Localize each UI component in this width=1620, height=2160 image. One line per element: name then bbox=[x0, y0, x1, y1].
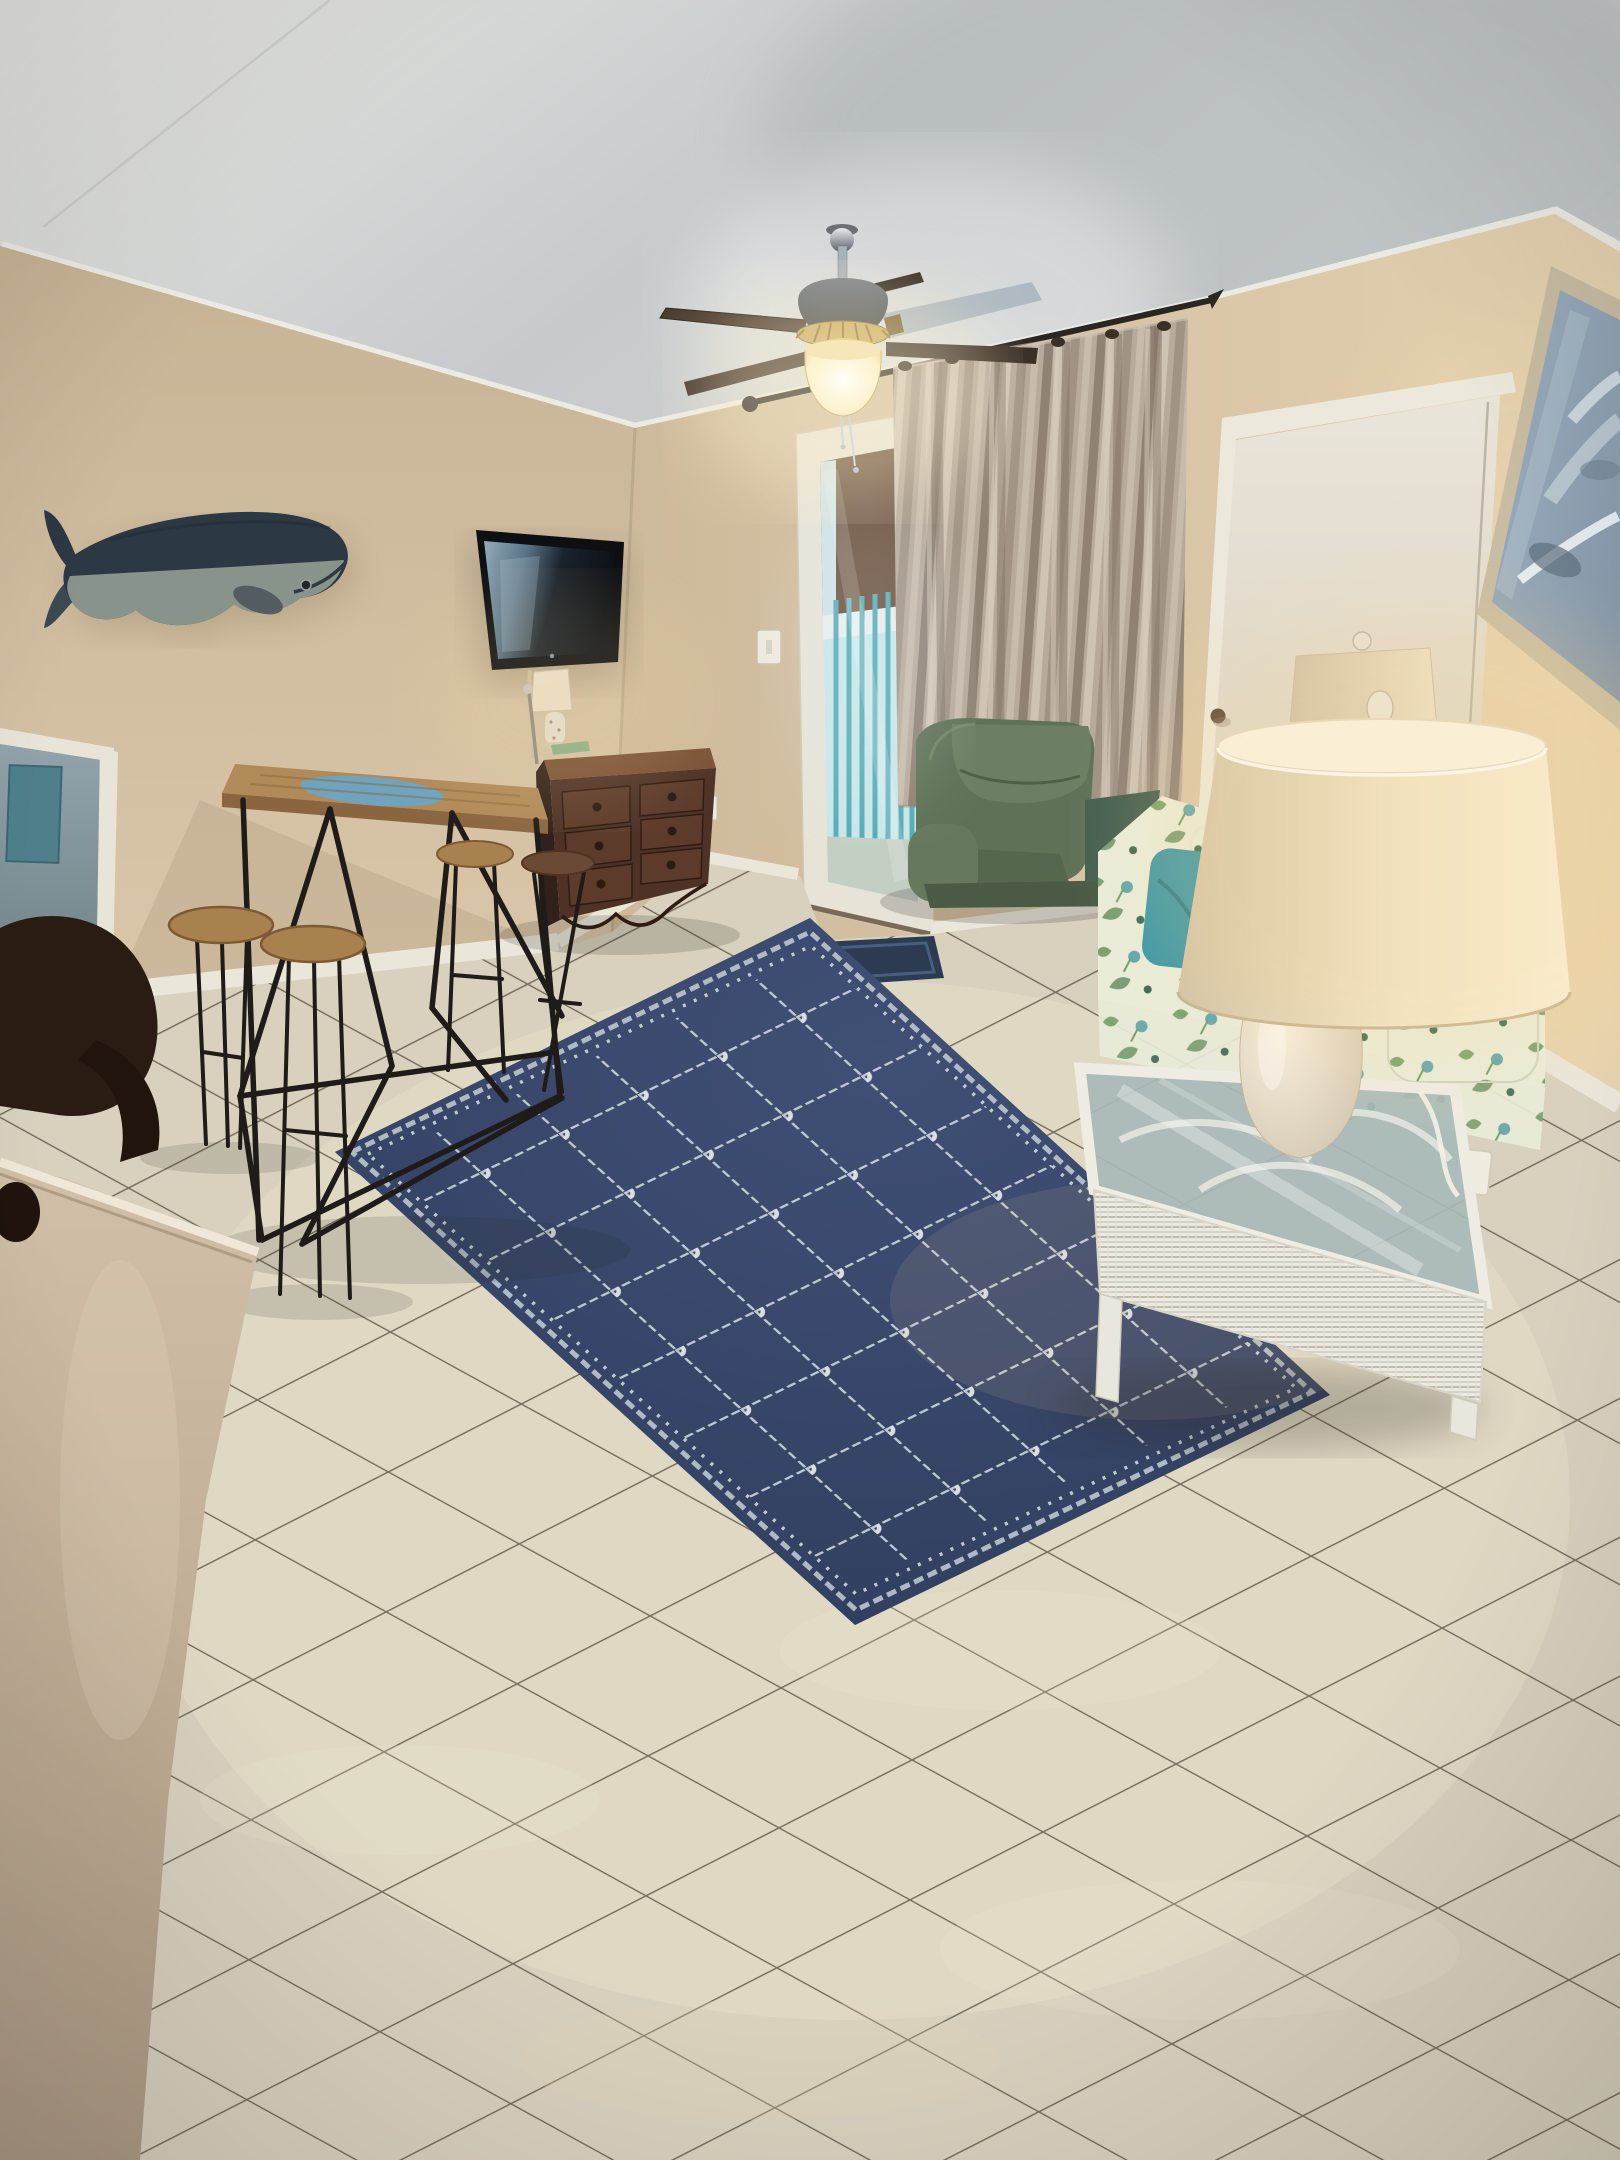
screenshot-root bbox=[0, 0, 1620, 2160]
vignette bbox=[0, 0, 1620, 2160]
living-room-photo bbox=[0, 0, 1620, 2160]
